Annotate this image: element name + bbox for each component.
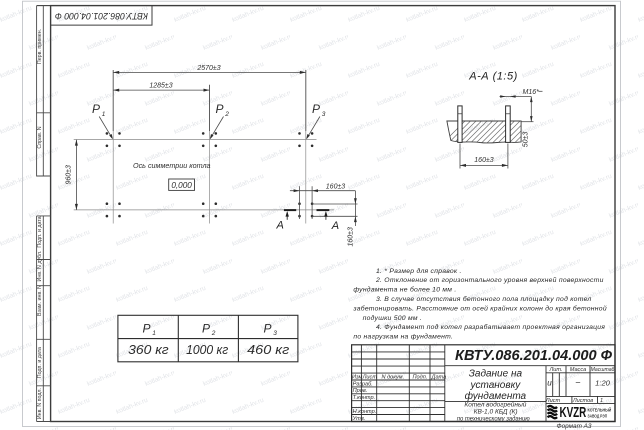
svg-text:фундамента: фундамента [465, 390, 527, 402]
svg-text:2. Отклонение от горизонтальн: 2. Отклонение от горизонтального уровня … [375, 276, 604, 284]
svg-text:фундамента не более 10 мм .: фундамента не более 10 мм . [353, 286, 456, 294]
svg-text:1. * Размер для справок .: 1. * Размер для справок . [376, 267, 462, 275]
svg-text:КВТУ.086.201.04.000 Ф: КВТУ.086.201.04.000 Ф [455, 347, 612, 364]
svg-text:1: 1 [102, 111, 106, 118]
svg-text:КОТЕЛЬНЫЙ: КОТЕЛЬНЫЙ [588, 408, 612, 413]
svg-text:1000 кг: 1000 кг [186, 342, 229, 357]
svg-text:Справ. N: Справ. N [37, 126, 43, 148]
svg-text:КВТУ.086.201.04.000 Ф: КВТУ.086.201.04.000 Ф [55, 11, 148, 21]
svg-text:Взам. инв. N: Взам. инв. N [37, 285, 43, 316]
svg-text:М16*: М16* [523, 89, 540, 96]
svg-text:Утв.: Утв. [352, 416, 366, 422]
svg-text:А: А [276, 219, 284, 231]
svg-text:Ось симметрии котла: Ось симметрии котла [133, 161, 211, 170]
svg-text:3. В случае отсутствия бетонн: 3. В случае отсутствия бетонного пола пл… [376, 295, 592, 303]
svg-text:по техническому заданию: по техническому заданию [457, 417, 530, 423]
svg-text:1285±3: 1285±3 [149, 83, 172, 90]
svg-text:Лист: Лист [545, 398, 561, 404]
svg-text:установку: установку [470, 380, 522, 391]
svg-text:160±3: 160±3 [348, 227, 355, 247]
svg-text:160±3: 160±3 [326, 183, 346, 190]
svg-text:1: 1 [600, 398, 603, 404]
svg-text:Подп.: Подп. [413, 374, 428, 380]
svg-text:забетонировать. Расстояние от: забетонировать. Расстояние от осей крайн… [352, 304, 606, 312]
svg-text:Т.контр.: Т.контр. [353, 395, 376, 401]
svg-text:P: P [202, 322, 210, 336]
svg-text:P: P [264, 322, 272, 336]
svg-text:P: P [92, 102, 100, 116]
svg-text:P: P [216, 102, 224, 116]
svg-text:Котел водогрейный: Котел водогрейный [464, 402, 527, 409]
svg-text:Лист: Лист [362, 374, 378, 380]
svg-text:Лит.: Лит. [548, 367, 562, 373]
svg-text:N докум.: N докум. [382, 374, 405, 380]
svg-text:Масса: Масса [570, 367, 587, 373]
svg-text:2570±3: 2570±3 [196, 65, 220, 72]
svg-text:Разраб.: Разраб. [353, 381, 373, 387]
svg-text:460 кг: 460 кг [247, 342, 290, 357]
svg-text:и: и [547, 379, 552, 388]
svg-text:1: 1 [152, 330, 156, 337]
svg-text:Н.контр.: Н.контр. [353, 409, 377, 415]
svg-text:960±3: 960±3 [66, 165, 73, 185]
svg-text:Подп. и дата: Подп. и дата [37, 216, 43, 247]
svg-text:3: 3 [322, 111, 326, 118]
svg-text:Инв. N дубл.: Инв. N дубл. [37, 251, 43, 282]
svg-text:по нагрузкам на фундамент.: по нагрузкам на фундамент. [353, 333, 453, 341]
svg-text:ЗАВОД РЭП: ЗАВОД РЭП [588, 414, 608, 419]
svg-text:Масштаб: Масштаб [591, 367, 616, 373]
svg-text:Формат А3: Формат А3 [557, 423, 592, 430]
svg-text:2: 2 [224, 111, 229, 118]
svg-text:1:20: 1:20 [595, 379, 611, 388]
svg-text:P: P [143, 322, 151, 336]
svg-text:P: P [312, 102, 320, 116]
svg-text:50±3: 50±3 [523, 132, 530, 148]
svg-text:2: 2 [211, 330, 216, 337]
svg-text:КВ-1,0 КБД (К): КВ-1,0 КБД (К) [474, 410, 518, 416]
svg-text:160±3: 160±3 [474, 157, 494, 164]
svg-text:Пров.: Пров. [353, 388, 368, 394]
svg-text:360 кг: 360 кг [128, 342, 169, 357]
svg-text:–: – [575, 378, 581, 387]
svg-text:4. Фундамент под котел разраб: 4. Фундамент под котел разрабатывает про… [376, 323, 605, 331]
svg-text:KVZR: KVZR [560, 404, 587, 420]
svg-text:0,000: 0,000 [171, 181, 192, 190]
svg-text:Инв. N подл.: Инв. N подл. [37, 388, 43, 419]
svg-text:Перв. примен.: Перв. примен. [37, 29, 43, 64]
svg-text:подушки 500 мм .: подушки 500 мм . [363, 314, 422, 322]
svg-text:А-А (1:5): А-А (1:5) [468, 70, 518, 82]
svg-text:3: 3 [273, 330, 277, 337]
svg-text:Дата: Дата [431, 374, 447, 380]
svg-text:Задание на: Задание на [469, 369, 523, 380]
svg-text:А: А [331, 220, 339, 232]
svg-text:Подп. и дата: Подп. и дата [37, 347, 43, 378]
